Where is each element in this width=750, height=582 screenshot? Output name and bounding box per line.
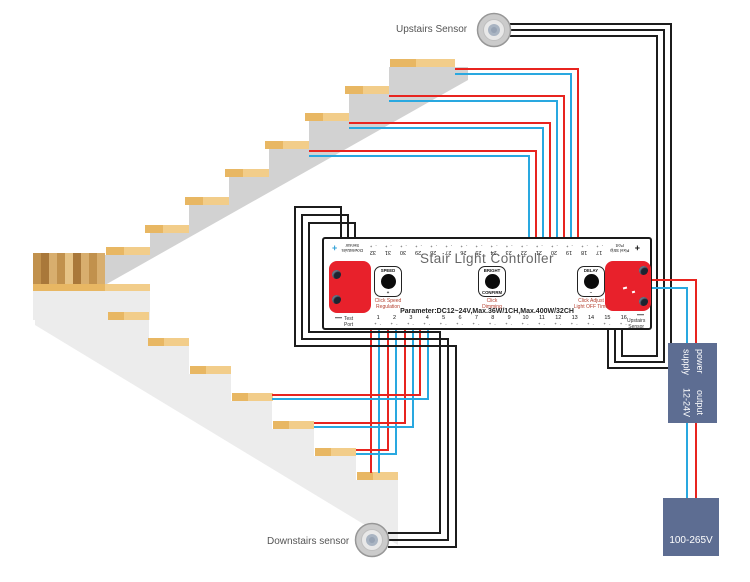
knob-dial-icon <box>381 274 396 289</box>
terminal: 12+ - <box>550 316 566 326</box>
terminal: 3+ - <box>403 316 419 326</box>
terminal: 4+ - <box>419 316 435 326</box>
terminal: 7+ - <box>468 316 484 326</box>
knob-dial-icon <box>584 274 599 289</box>
terminal: 8+ - <box>485 316 501 326</box>
upstairs-terminal-label: Upstairs Sensor <box>627 318 645 330</box>
ac-input-box: 100-265V <box>663 498 719 556</box>
bottom-terminals: 1+ -2+ -3+ -4+ -5+ -6+ -7+ -8+ -9+ -10+ … <box>370 316 632 326</box>
terminal-tick <box>632 291 635 294</box>
screw-icon <box>332 270 341 279</box>
controller-title: Stair Light Controller <box>324 251 650 266</box>
bright-knob: BRIGHT CONFIRM <box>478 266 506 297</box>
speed-knob: SPEED + <box>374 266 402 297</box>
knob-dial-icon <box>485 274 500 289</box>
power-supply-box: power supply output 12-24V <box>668 343 717 423</box>
delay-knob-label: DELAY <box>584 268 598 273</box>
speed-knob-label: SPEED <box>381 268 396 273</box>
upstairs-sensor-label: Upstairs Sensor <box>396 24 467 35</box>
ac-input-label: 100-265V <box>669 535 712 546</box>
terminal: 6+ - <box>452 316 468 326</box>
minus-mark-left: — <box>335 315 342 322</box>
stair-light-controller: + Downstairs Sensor 32- +31- +30- +29- +… <box>322 237 652 330</box>
power-supply-label-line1: power supply <box>679 343 706 381</box>
terminal: 11+ - <box>534 316 550 326</box>
downstairs-sensor-icon <box>356 524 389 557</box>
parameter-text: Parameter:DC12~24V,Max.36W/1CH,Max.400W/… <box>400 308 574 315</box>
screw-icon <box>332 295 341 304</box>
bright-knob-sub: CONFIRM <box>482 291 502 295</box>
delay-knob-sub: – <box>590 291 592 295</box>
terminal: 15+ - <box>599 316 615 326</box>
terminal-tick <box>623 287 627 290</box>
terminal: 10+ - <box>517 316 533 326</box>
terminal: 2+ - <box>386 316 402 326</box>
diagram-canvas: Upstairs Sensor Downstairs sensor + Down… <box>0 0 750 582</box>
speed-knob-sub: + <box>387 291 390 295</box>
screw-icon <box>639 266 648 275</box>
downstairs-sensor-label: Downstairs sensor <box>267 536 349 547</box>
terminal: 5+ - <box>436 316 452 326</box>
terminal: 14+ - <box>583 316 599 326</box>
test-port-label: Test Port <box>344 316 353 328</box>
terminal: 9+ - <box>501 316 517 326</box>
delay-knob: DELAY – <box>577 266 605 297</box>
power-supply-label-line2: output 12-24V <box>679 383 706 423</box>
bright-knob-label: BRIGHT <box>484 268 500 273</box>
upstairs-sensor-icon <box>478 14 511 47</box>
lower-staircase <box>35 320 398 545</box>
terminal: 1+ - <box>370 316 386 326</box>
screw-icon <box>639 297 648 306</box>
terminal: 13+ - <box>567 316 583 326</box>
